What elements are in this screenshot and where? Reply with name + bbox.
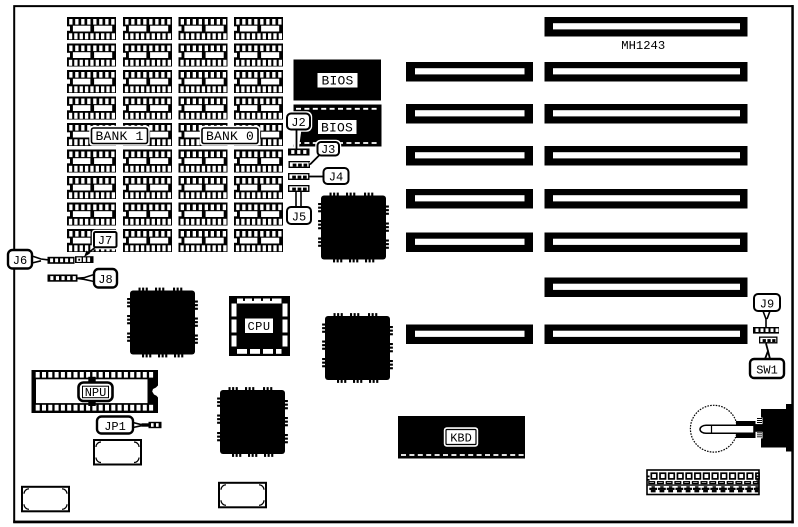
svg-text:J8: J8 [98,273,112,287]
svg-text:BANK 1: BANK 1 [95,129,143,144]
svg-text:BANK 0: BANK 0 [206,129,254,144]
svg-text:J6: J6 [13,254,27,268]
svg-text:NPU: NPU [85,386,107,400]
svg-text:KBD: KBD [450,432,472,446]
svg-text:MH1243: MH1243 [621,39,665,53]
svg-text:J3: J3 [321,143,335,157]
svg-text:CPU: CPU [247,320,270,334]
svg-text:BIOS: BIOS [321,74,353,89]
svg-text:J5: J5 [292,211,306,225]
svg-text:J9: J9 [760,298,774,312]
svg-text:J2: J2 [291,116,305,130]
svg-text:J4: J4 [329,171,343,185]
svg-text:JP1: JP1 [104,420,126,434]
svg-text:SW1: SW1 [756,364,778,378]
svg-text:BIOS: BIOS [321,120,353,135]
svg-text:J7: J7 [98,234,112,248]
